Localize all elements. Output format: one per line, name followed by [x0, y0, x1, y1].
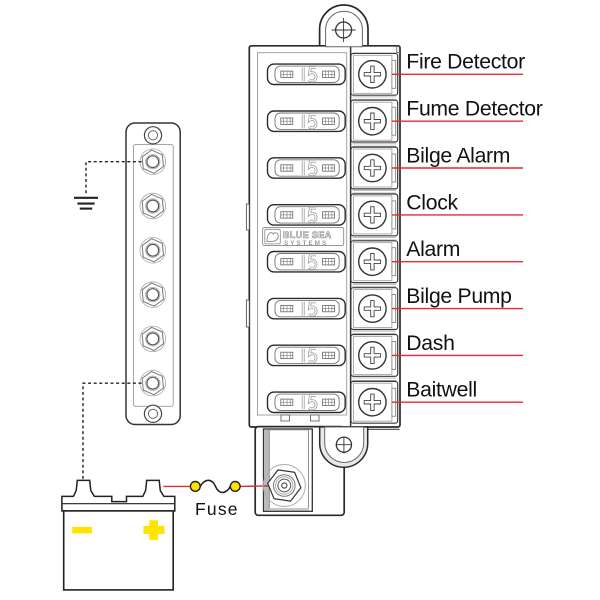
- svg-text:Fuse: Fuse: [195, 499, 239, 519]
- svg-text:Fume Detector: Fume Detector: [406, 98, 542, 121]
- svg-text:Bilge Alarm: Bilge Alarm: [406, 144, 510, 167]
- svg-text:Alarm: Alarm: [406, 238, 460, 261]
- svg-text:SYSTEMS: SYSTEMS: [284, 240, 328, 247]
- svg-text:Fire Detector: Fire Detector: [406, 51, 525, 74]
- svg-text:Bilge Pump: Bilge Pump: [406, 285, 511, 308]
- svg-text:Clock: Clock: [406, 191, 458, 214]
- svg-text:BLUE SEA: BLUE SEA: [283, 230, 332, 240]
- svg-text:Baitwell: Baitwell: [406, 379, 477, 402]
- svg-text:Dash: Dash: [406, 332, 454, 355]
